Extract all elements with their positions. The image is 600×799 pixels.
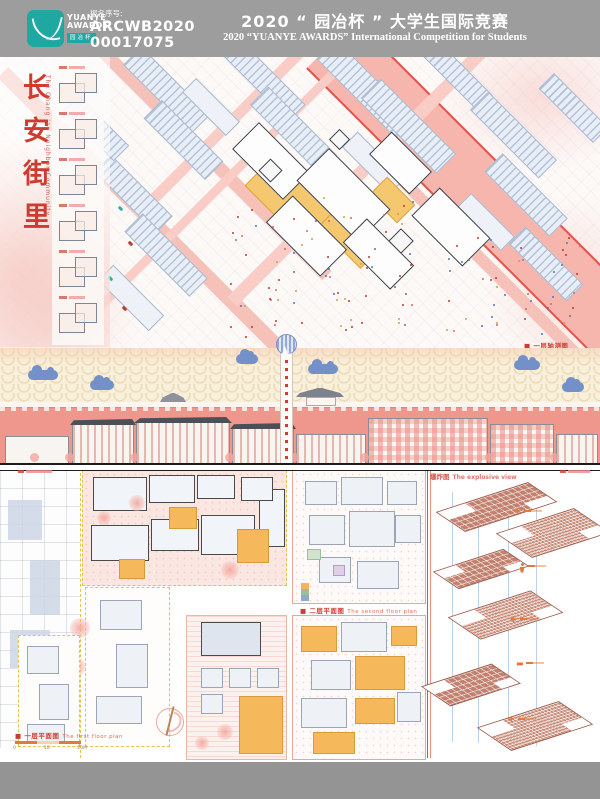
icon-label-mark (524, 510, 542, 512)
people-dot (278, 279, 280, 281)
section-building (490, 424, 554, 463)
chunk-notch (498, 526, 535, 543)
plan-room (301, 626, 337, 652)
cloud-icon (308, 364, 338, 374)
thumbnail-label-mark (59, 158, 85, 161)
medical-cross-icon: ✚ (514, 508, 521, 516)
people-dot (293, 252, 295, 254)
people-dot (562, 249, 564, 251)
second-floor-plan-label: ■ 二层平面图The second floor plan (300, 605, 417, 615)
orange-room (119, 559, 145, 579)
plan-room (305, 481, 337, 505)
gate-base (306, 397, 336, 406)
scale-bar (15, 741, 81, 744)
people-dot (453, 330, 455, 332)
scale-tick-1: 10 (44, 746, 50, 751)
unit-thumbnail (57, 209, 99, 243)
green-room (307, 549, 321, 560)
chunk-notch (450, 610, 487, 626)
axon-chunk (421, 664, 521, 707)
chunk-notch (562, 717, 592, 730)
orange-room (169, 507, 197, 529)
people-dot (232, 232, 234, 234)
chunk-notch (525, 496, 556, 509)
people-dot (329, 276, 331, 278)
cloud-icon (562, 382, 584, 392)
people-dot (482, 278, 484, 280)
street-tree (485, 453, 494, 462)
section-label-mark-right (560, 470, 590, 473)
street-tree (360, 453, 369, 462)
thumbnail-label-mark (59, 250, 85, 253)
plan-room (301, 698, 347, 728)
plan-room (241, 477, 273, 501)
tree-symbol (97, 511, 111, 525)
people-dot (490, 239, 492, 241)
street-tree (30, 453, 39, 462)
plan-room (355, 656, 405, 690)
plans-zone: ■ 二层平面图The second floor plan ■ 一层平面图The … (0, 468, 600, 762)
context-room (8, 500, 42, 540)
people-dot (371, 266, 373, 268)
yuanye-logo-icon (27, 10, 64, 47)
detail-plan-b2 (292, 615, 426, 760)
people-dot (504, 294, 506, 296)
plan-room (309, 515, 345, 545)
axon-chunk (433, 549, 529, 589)
second-floor-label-cn: ■ 二层平面图 (300, 607, 344, 615)
section-building (368, 418, 488, 463)
plan-room (341, 622, 387, 652)
cloud-icon (90, 380, 114, 390)
explosive-title-cn: 爆炸图 (430, 473, 450, 481)
plan-room (27, 646, 59, 674)
bench-icon: ▬ (516, 660, 524, 668)
people-dot (520, 247, 522, 249)
people-dot (412, 201, 414, 203)
people-dot (465, 318, 467, 320)
unit-thumbnail (57, 255, 99, 289)
icon-label-mark (518, 718, 536, 720)
cloud-icon (236, 354, 258, 364)
people-dot (327, 256, 329, 258)
unit-plan-shape (75, 303, 97, 323)
orange-floor (239, 696, 283, 754)
street-tree (225, 453, 234, 462)
explosive-view-title: 爆炸图The explosive view (430, 471, 517, 481)
detail-plan-c (186, 615, 287, 760)
unit-thumbnail (57, 117, 99, 151)
people-dot (366, 267, 368, 269)
section-label-mark (18, 470, 52, 473)
registration-label: 报名序号: (90, 8, 195, 19)
explosive-view-column: 爆炸图The explosive view ✚✚▬✚ (430, 468, 600, 762)
sectional-elevation (0, 402, 600, 463)
people-dot (361, 322, 363, 324)
chunk-notch (532, 606, 562, 619)
chunk-notch (579, 525, 600, 538)
plan-room (197, 475, 235, 499)
people-dot (230, 326, 232, 328)
person-icon (518, 563, 526, 573)
plan-room (229, 668, 251, 688)
people-dot (399, 275, 401, 277)
first-floor-label-cn: ■ 一层平面图 (15, 732, 59, 740)
people-dot (569, 315, 571, 317)
chunk-notch (494, 678, 519, 689)
people-dot (306, 230, 308, 232)
street-tree (65, 453, 74, 462)
people-dot (490, 279, 492, 281)
plan-room (391, 626, 417, 646)
unit-plan-shape (75, 165, 97, 185)
project-subtitle-vertical: The Chang 'an Neighbor Community (44, 75, 51, 216)
context-room (30, 560, 60, 615)
street-tree (130, 453, 139, 462)
purple-room (333, 565, 345, 576)
people-dot (461, 261, 463, 263)
people-dot (325, 275, 327, 277)
people-dot (456, 245, 458, 247)
left-title-strip: 长安街里 The Chang 'an Neighbor Community (0, 57, 110, 347)
competition-poster-page: YUANYE AWARDS 园冶杯 报名序号: ARCWB2020 000170… (0, 0, 600, 799)
people-dot (328, 220, 330, 222)
ground-line (0, 463, 600, 471)
section-building (136, 422, 230, 463)
first-floor-label-en: The first floor plan (62, 734, 123, 740)
plan-room (39, 684, 69, 720)
medical-cross-icon: ✚ (508, 716, 515, 724)
stage-room (201, 622, 261, 656)
detail-plan-a (82, 470, 287, 586)
chunk-notch (438, 504, 476, 520)
people-dot (398, 318, 400, 320)
thumbnail-label-mark (59, 296, 85, 299)
people-dot (301, 244, 303, 246)
chunk-notch (435, 565, 465, 578)
people-dot (360, 263, 362, 265)
banner-tower (280, 353, 293, 465)
people-dot (333, 293, 335, 295)
people-dot (336, 299, 338, 301)
axon-chunk (477, 701, 593, 751)
explosive-title-en: The explosive view (453, 474, 517, 481)
peach-gradient (0, 348, 600, 366)
plan-room (257, 668, 279, 688)
unit-thumbnail (57, 71, 99, 105)
plan-room (341, 477, 383, 505)
competition-title-cn: 2020 “ 园冶杯 ” 大学生国际竞赛 (190, 8, 560, 32)
people-dot (398, 322, 400, 324)
axon-chunk (448, 591, 564, 640)
registration-number: 报名序号: ARCWB2020 00017075 (90, 8, 195, 51)
unit-thumbnail (57, 163, 99, 197)
first-floor-plan-label: ■ 一层平面图The first floor plan (15, 730, 123, 740)
people-dot (348, 300, 350, 302)
people-dot (328, 268, 330, 270)
thumbnail-label-mark (59, 112, 85, 115)
unit-thumbnail (57, 301, 99, 335)
header-bar: YUANYE AWARDS 园冶杯 报名序号: ARCWB2020 000170… (0, 0, 600, 57)
plan-room (355, 698, 395, 724)
people-dot (368, 256, 370, 258)
people-dot (269, 298, 271, 300)
north-arrow-icon (152, 704, 188, 740)
people-dot (284, 248, 286, 250)
people-dot (409, 253, 411, 255)
people-dot (374, 248, 376, 250)
gate-roof (296, 388, 344, 397)
dashed-guide (80, 468, 81, 758)
people-dot (340, 325, 342, 327)
section-building (556, 434, 598, 463)
people-dot (365, 295, 367, 297)
street-tree (550, 453, 559, 462)
people-dot (527, 293, 529, 295)
people-dot (547, 307, 549, 309)
plan-room (100, 600, 142, 630)
scale-tick-0: 0 (13, 746, 16, 751)
plan-room (311, 660, 351, 690)
plan-room (116, 644, 148, 688)
competition-title-en: 2020 “YUANYE AWARDS” International Compe… (190, 32, 560, 43)
icon-label-mark (520, 618, 538, 620)
people-dot (552, 296, 554, 298)
plan-room (395, 515, 421, 543)
plan-room (349, 511, 395, 547)
gate-roof-icon (296, 388, 344, 404)
registration-line1: ARCWB2020 (90, 19, 195, 35)
unit-plan-shape (75, 73, 97, 93)
plan-room (149, 475, 195, 503)
tree-symbol (129, 495, 145, 511)
poster-board: 长安街里 The Chang 'an Neighbor Community ■ … (0, 57, 600, 762)
people-dot (394, 286, 396, 288)
section-building (72, 424, 134, 463)
people-dot (496, 286, 498, 288)
plan-room (91, 525, 149, 561)
registration-line2: 00017075 (90, 35, 195, 51)
people-dot (235, 239, 237, 241)
icon-label-mark (526, 662, 544, 664)
plan-room (201, 668, 223, 688)
tree-symbol (195, 736, 209, 750)
people-dot (579, 245, 581, 247)
plan-room (397, 692, 421, 722)
people-dot (541, 333, 543, 335)
people-dot (403, 205, 405, 207)
people-dot (251, 326, 253, 328)
unit-plan-shape (75, 257, 97, 277)
scale-tick-2: 20M (77, 746, 87, 751)
detail-plan-b (292, 470, 426, 604)
people-dot (448, 300, 450, 302)
scale-ticks: 0 10 20M (13, 746, 87, 751)
section-building (296, 434, 366, 463)
unit-plan-shape (75, 119, 97, 139)
cloud-icon (28, 370, 58, 380)
plan-room (313, 732, 355, 754)
people-dot (563, 322, 565, 324)
unit-thumbnail-column (52, 61, 104, 345)
tree-symbol (221, 561, 239, 579)
cloud-icon (514, 360, 540, 370)
unit-plan-shape (75, 211, 97, 231)
plan-room (201, 694, 223, 714)
people-dot (495, 277, 497, 279)
people-dot (397, 213, 399, 215)
people-dot (245, 254, 247, 256)
people-dot (251, 209, 253, 211)
medical-cross-icon: ✚ (510, 616, 517, 624)
plan-room (387, 481, 417, 505)
tree-symbol (217, 724, 233, 740)
icon-label-mark (528, 565, 546, 567)
people-dot (240, 305, 242, 307)
legend-swatch (301, 595, 309, 601)
plan-room (357, 561, 399, 589)
people-dot (446, 329, 448, 331)
thumbnail-label-mark (59, 204, 85, 207)
plan-room (96, 696, 142, 724)
thumbnail-label-mark (59, 66, 85, 69)
orange-room (237, 529, 269, 563)
